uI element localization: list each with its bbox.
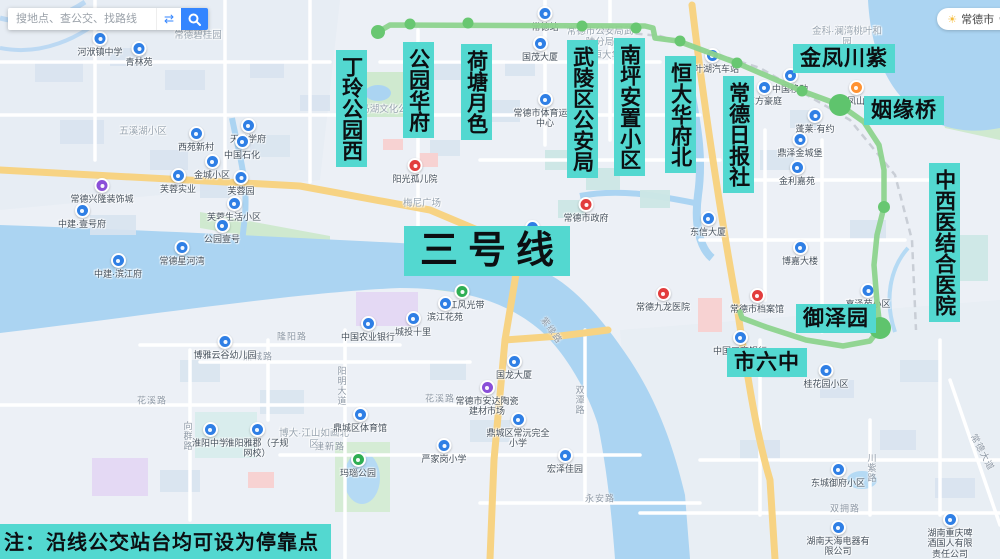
search-button[interactable] xyxy=(181,8,208,30)
map-canvas[interactable]: 河洑镇中学青林苑常德碧桂园五溪湖小区西苑新村天健学府中国石化金城小区芙蓉实业芙蓉… xyxy=(0,0,1000,559)
station-label: 金凤川紫 xyxy=(793,44,895,73)
station-label: 常德日报社 xyxy=(723,76,754,193)
route-stop-marker xyxy=(463,18,474,29)
station-label: 南坪安置小区 xyxy=(614,38,645,176)
search-input[interactable] xyxy=(8,8,156,30)
route-stop-marker xyxy=(631,23,642,34)
route-stop-marker xyxy=(732,58,743,69)
route-stop-marker xyxy=(371,25,385,39)
search-icon xyxy=(188,13,201,26)
city-selector[interactable]: ☀ 常德市 ∨ xyxy=(937,8,1000,30)
directions-icon[interactable]: ⇄ xyxy=(156,8,181,30)
sun-icon: ☀ xyxy=(947,13,957,26)
route-title: 三号线 xyxy=(404,226,570,276)
route-stop-marker xyxy=(829,94,851,116)
route-stop-marker xyxy=(878,201,890,213)
station-label: 姻缘桥 xyxy=(864,96,944,125)
station-label: 中西医结合医院 xyxy=(929,163,960,322)
search-bar: ⇄ xyxy=(8,8,208,30)
station-label: 丁玲公园西 xyxy=(336,50,367,167)
station-label: 市六中 xyxy=(727,348,807,377)
bus-route-line xyxy=(0,0,1000,559)
route-stop-marker xyxy=(675,36,686,47)
station-label: 恒大华府北 xyxy=(665,56,696,173)
station-label: 公园华府 xyxy=(403,42,434,138)
route-stop-marker xyxy=(797,86,808,97)
station-label: 荷塘月色 xyxy=(461,44,492,140)
route-stop-marker xyxy=(405,19,416,30)
route-note: 注：沿线公交站台均可设为停靠点 xyxy=(0,524,331,559)
station-label: 御泽园 xyxy=(796,304,876,333)
city-name: 常德市 xyxy=(961,11,994,27)
station-label: 武陵区公安局 xyxy=(567,40,598,178)
route-stop-marker xyxy=(577,21,588,32)
